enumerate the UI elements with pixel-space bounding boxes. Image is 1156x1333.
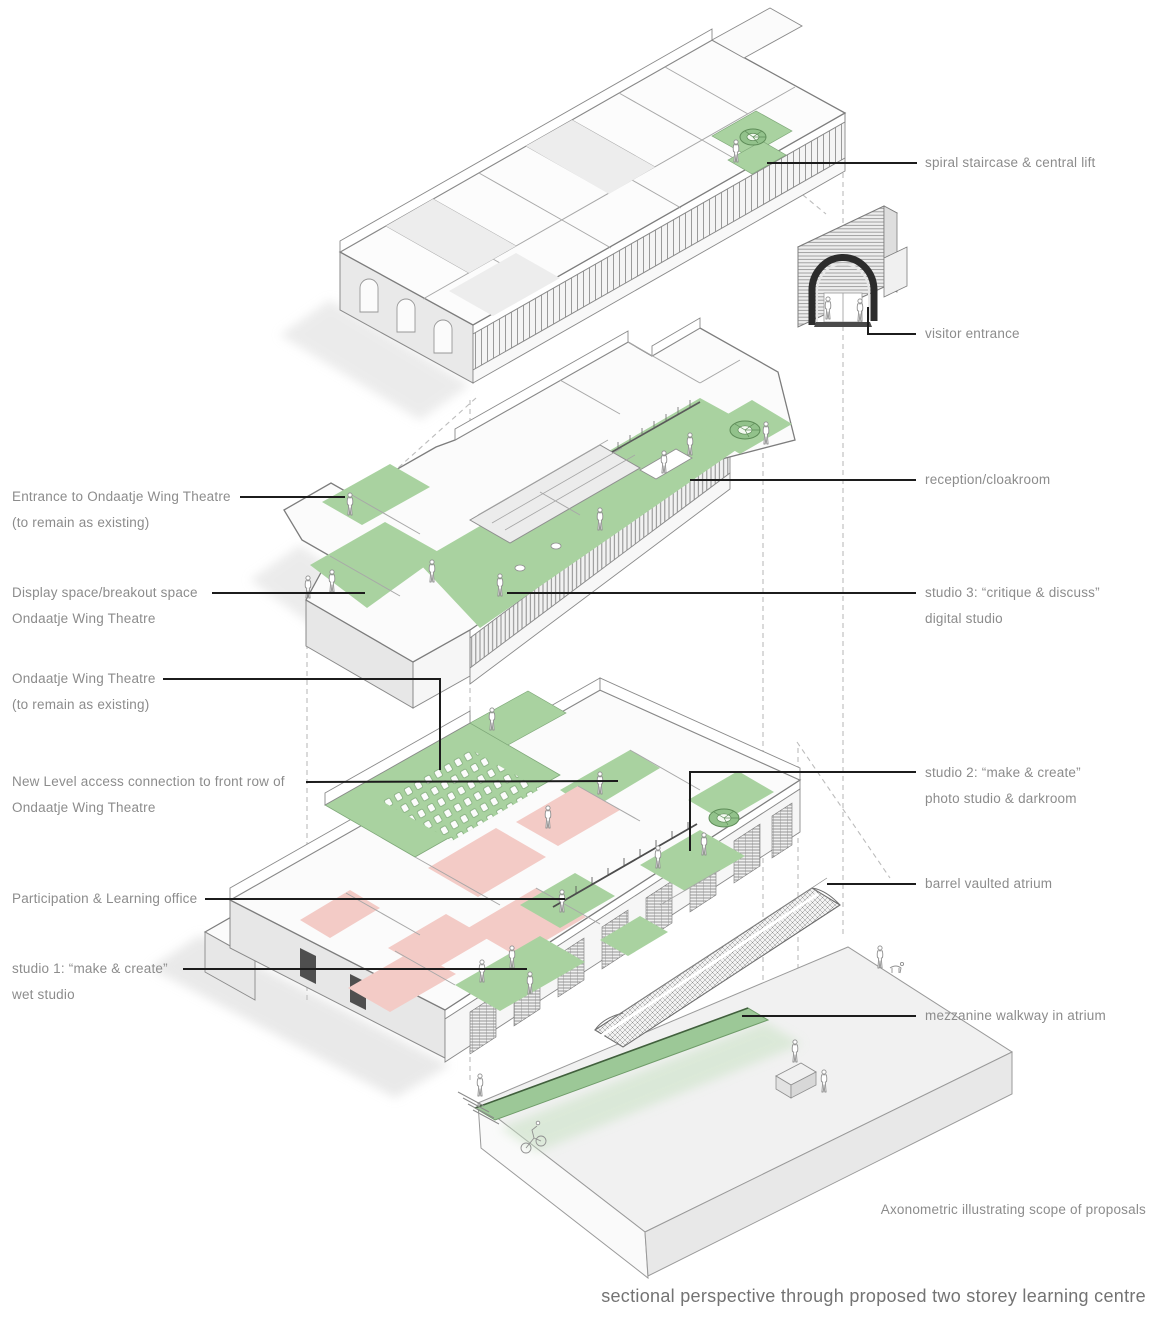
label-spiral-staircase: spiral staircase & central lift [925, 150, 1096, 176]
person-figure [877, 946, 883, 968]
upper-floor [340, 8, 845, 383]
label-studio2: studio 2: “make & create” photo studio &… [925, 760, 1081, 812]
label-visitor-entrance: visitor entrance [925, 321, 1020, 347]
label-reception: reception/cloakroom [925, 467, 1050, 493]
spiral-staircase-icon [709, 809, 739, 827]
label-studio3: studio 3: “critique & discuss” digital s… [925, 580, 1100, 632]
label-ondaatje-theatre: Ondaatje Wing Theatre (to remain as exis… [12, 666, 156, 718]
label-entrance-owt: Entrance to Ondaatje Wing Theatre (to re… [12, 484, 231, 536]
person-figure [733, 140, 739, 162]
label-display-space: Display space/breakout space Ondaatje Wi… [12, 580, 198, 632]
label-studio1: studio 1: “make & create” wet studio [12, 956, 168, 1008]
spiral-staircase-icon [740, 129, 766, 145]
person-figure [489, 708, 495, 730]
axonometric-note: Axonometric illustrating scope of propos… [746, 1197, 1146, 1223]
person-figure [821, 1070, 827, 1092]
axonometric-drawing [0, 0, 1156, 1333]
person-figure [857, 299, 863, 321]
axonometric-sheet: Entrance to Ondaatje Wing Theatre (to re… [0, 0, 1156, 1333]
sheet-title: sectional perspective through proposed t… [446, 1286, 1146, 1307]
label-new-level-access: New Level access connection to front row… [12, 769, 285, 821]
person-figure [825, 297, 831, 319]
label-mezzanine-walkway: mezzanine walkway in atrium [925, 1003, 1106, 1029]
visitor-entrance-piece [798, 206, 907, 327]
dog-figure [890, 962, 904, 973]
label-participation-office: Participation & Learning office [12, 886, 197, 912]
person-figure [477, 1074, 483, 1096]
label-barrel-vault: barrel vaulted atrium [925, 871, 1052, 897]
leader-new-level-access [306, 781, 618, 782]
spiral-staircase-icon [730, 421, 760, 439]
